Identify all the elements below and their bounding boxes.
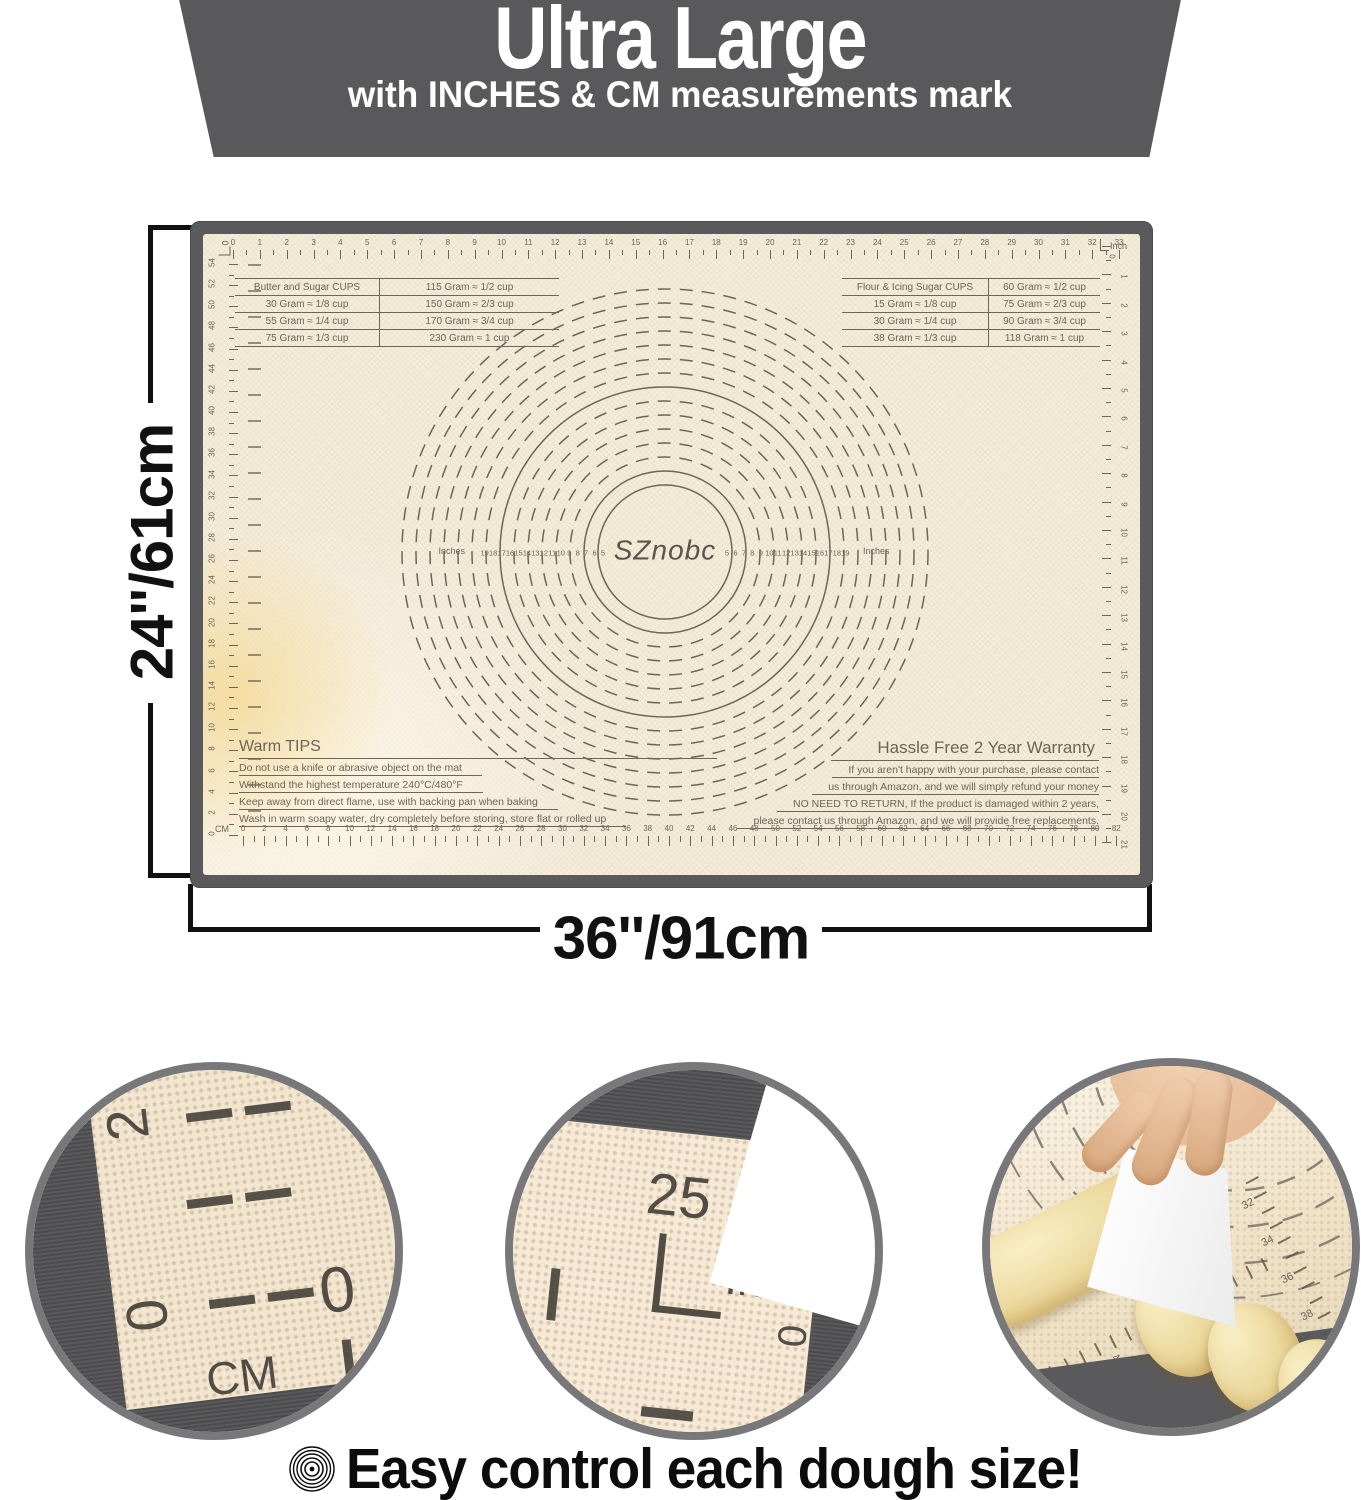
cm-scale-number: 2 bbox=[93, 1104, 163, 1144]
ring-number: 18 bbox=[833, 549, 841, 558]
dimension-line bbox=[148, 225, 194, 230]
ruler-tick bbox=[546, 1268, 560, 1321]
ring-number: 17 bbox=[824, 549, 832, 558]
table-row: Flour & Icing Sugar CUPS60 Gram ≈ 1/2 cu… bbox=[842, 279, 1100, 296]
table-cell: 90 Gram ≈ 3/4 cup bbox=[989, 313, 1100, 329]
ring-number: 9 bbox=[567, 549, 571, 558]
inches-caption-right: Inches bbox=[863, 546, 890, 556]
ruler-tick bbox=[244, 1101, 291, 1116]
ring-number: 12 bbox=[782, 549, 790, 558]
table-cell: 15 Gram ≈ 1/8 cup bbox=[842, 296, 989, 312]
ruler-tick bbox=[342, 1339, 356, 1382]
dimension-line bbox=[1147, 884, 1152, 932]
table-cell: Butter and Sugar CUPS bbox=[235, 279, 380, 295]
conversion-table-left: Butter and Sugar CUPS115 Gram ≈ 1/2 cup3… bbox=[235, 278, 559, 347]
table-cell: Flour & Icing Sugar CUPS bbox=[842, 279, 989, 295]
table-cell: 75 Gram ≈ 2/3 cup bbox=[989, 296, 1100, 312]
ring-number: 7 bbox=[742, 549, 746, 558]
dimension-line bbox=[148, 227, 153, 403]
dimension-line bbox=[188, 884, 193, 932]
inch-zero-label: 0 bbox=[767, 1323, 814, 1350]
warranty-line: If you aren't happy with your purchase, … bbox=[832, 761, 1099, 778]
warm-tip-line: Keep away from direct flame, use with ba… bbox=[239, 793, 558, 810]
cm-unit-label: CM bbox=[203, 1345, 281, 1407]
mat-surface: 5566778899101011111212131314141515161617… bbox=[203, 234, 1140, 875]
ring-number: 6 bbox=[733, 549, 737, 558]
width-dimension-label: 36''/91cm bbox=[553, 904, 809, 973]
table-row: 38 Gram ≈ 1/3 cup118 Gram ≈ 1 cup bbox=[842, 330, 1100, 347]
table-cell: 170 Gram ≈ 3/4 cup bbox=[380, 313, 559, 329]
table-cell: 38 Gram ≈ 1/3 cup bbox=[842, 330, 989, 346]
table-row: 15 Gram ≈ 1/8 cup75 Gram ≈ 2/3 cup bbox=[842, 296, 1100, 313]
ring-number: 10 bbox=[765, 549, 773, 558]
table-cell: 75 Gram ≈ 1/3 cup bbox=[235, 330, 380, 346]
ring-number: 8 bbox=[576, 549, 580, 558]
table-row: 30 Gram ≈ 1/4 cup90 Gram ≈ 3/4 cup bbox=[842, 313, 1100, 330]
ring-number: 13 bbox=[531, 549, 539, 558]
warm-tip-line: Do not use a knife or abrasive object on… bbox=[239, 759, 482, 776]
conversion-table-right: Flour & Icing Sugar CUPS60 Gram ≈ 1/2 cu… bbox=[842, 278, 1100, 347]
ring-number: 11 bbox=[548, 549, 556, 558]
target-circles-icon bbox=[287, 1444, 337, 1494]
table-row: 30 Gram ≈ 1/8 cup150 Gram ≈ 2/3 cup bbox=[235, 296, 559, 313]
banner-title: Ultra Large bbox=[253, 0, 1106, 84]
cm-scale-number: 0 bbox=[112, 1295, 182, 1335]
ring-number: 10 bbox=[557, 549, 565, 558]
ruler-tick bbox=[245, 1187, 292, 1202]
closeup-dough-photo: 23456 32343638404244 bbox=[982, 1058, 1360, 1436]
ring-number: 13 bbox=[790, 549, 798, 558]
table-cell: 30 Gram ≈ 1/8 cup bbox=[235, 296, 380, 312]
warm-tip-line: Withstand the highest temperature 240°C/… bbox=[239, 776, 483, 793]
ring-number: 12 bbox=[540, 549, 548, 558]
ring-number: 15 bbox=[807, 549, 815, 558]
closeup-inch-corner: 25 Inch 0 bbox=[505, 1062, 883, 1440]
ruler-tick bbox=[267, 1287, 314, 1302]
table-cell: 150 Gram ≈ 2/3 cup bbox=[380, 296, 559, 312]
table-cell: 118 Gram ≈ 1 cup bbox=[989, 330, 1100, 346]
cm-zero-label: 0 bbox=[315, 1251, 359, 1329]
ring-number: 14 bbox=[799, 549, 807, 558]
ring-number: 16 bbox=[816, 549, 824, 558]
warranty-title: Hassle Free 2 Year Warranty bbox=[831, 738, 1099, 761]
banner-subtitle: with INCHES & CM measurements mark bbox=[197, 74, 1162, 116]
footer-caption: Easy control each dough size! bbox=[346, 1436, 1082, 1500]
ring-number: 5 bbox=[725, 549, 729, 558]
ring-number: 7 bbox=[584, 549, 588, 558]
table-row: Butter and Sugar CUPS115 Gram ≈ 1/2 cup bbox=[235, 279, 559, 296]
table-cell: 30 Gram ≈ 1/4 cup bbox=[842, 313, 989, 329]
product-image: Ultra Large with INCHES & CM measurement… bbox=[0, 0, 1361, 1500]
table-row: 55 Gram ≈ 1/4 cup170 Gram ≈ 3/4 cup bbox=[235, 313, 559, 330]
ring-number: 8 bbox=[750, 549, 754, 558]
dimension-line bbox=[148, 703, 153, 875]
ring-number: 11 bbox=[774, 549, 782, 558]
ring-number: 18 bbox=[489, 549, 497, 558]
ring-number: 9 bbox=[759, 549, 763, 558]
brand-logo: SZnobc bbox=[614, 535, 717, 567]
mat-corner-detail: 2 0 CM 0 bbox=[25, 1062, 403, 1440]
table-cell: 55 Gram ≈ 1/4 cup bbox=[235, 313, 380, 329]
ring-number: 15 bbox=[514, 549, 522, 558]
table-row: 75 Gram ≈ 1/3 cup230 Gram ≈ 1 cup bbox=[235, 330, 559, 347]
warranty-note: Hassle Free 2 Year Warranty If you aren'… bbox=[583, 738, 1099, 829]
height-dimension-label: 24''/61cm bbox=[118, 424, 187, 680]
dimension-line bbox=[148, 873, 194, 878]
ruler-tick bbox=[641, 1406, 694, 1421]
ring-number: 5 bbox=[601, 549, 605, 558]
banner: Ultra Large with INCHES & CM measurement… bbox=[172, 0, 1188, 157]
ring-number: 19 bbox=[841, 549, 849, 558]
ring-number: 14 bbox=[523, 549, 531, 558]
ring-number: 17 bbox=[497, 549, 505, 558]
ring-number: 19 bbox=[481, 549, 489, 558]
inches-caption-left: Inches bbox=[395, 546, 465, 556]
warranty-line: NO NEED TO RETURN, If the product is dam… bbox=[777, 795, 1099, 812]
dimension-line bbox=[822, 927, 1150, 932]
table-cell: 230 Gram ≈ 1 cup bbox=[380, 330, 559, 346]
photo-ruler-number: 44 bbox=[1358, 1419, 1360, 1435]
ring-number: 16 bbox=[506, 549, 514, 558]
ruler-tick bbox=[186, 1108, 233, 1123]
dimension-line bbox=[190, 927, 540, 932]
warranty-line: us through Amazon, and we will simply re… bbox=[812, 778, 1099, 795]
closeup-cm-corner: 2 0 CM 0 bbox=[25, 1062, 403, 1440]
warranty-line: please contact us through Amazon, and we… bbox=[737, 812, 1099, 829]
baking-mat: 5566778899101011111212131314141515161617… bbox=[190, 221, 1153, 888]
table-cell: 115 Gram ≈ 1/2 cup bbox=[380, 279, 559, 295]
table-cell: 60 Gram ≈ 1/2 cup bbox=[989, 279, 1100, 295]
warm-tip-line: Wash in warm soapy water, dry completely… bbox=[239, 810, 626, 827]
ring-number: 6 bbox=[592, 549, 596, 558]
ruler-tick bbox=[209, 1295, 256, 1310]
ruler-tick bbox=[186, 1195, 233, 1210]
inch-scale-number: 25 bbox=[643, 1160, 714, 1233]
